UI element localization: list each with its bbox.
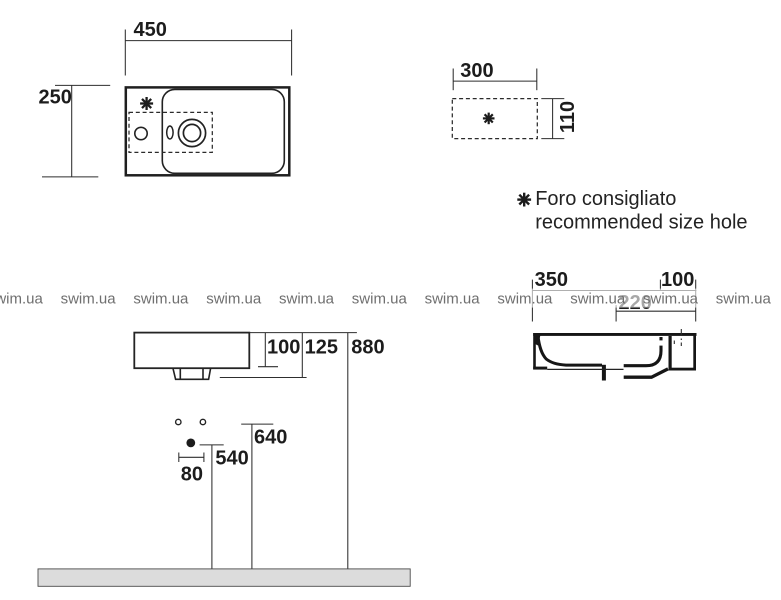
svg-text:swim.ua: swim.ua: [133, 291, 189, 308]
svg-text:swim.ua: swim.ua: [0, 291, 43, 308]
svg-text:100: 100: [267, 336, 300, 358]
svg-text:swim.ua: swim.ua: [497, 291, 553, 308]
svg-text:540: 540: [215, 447, 248, 469]
svg-text:swim.ua: swim.ua: [570, 291, 626, 308]
svg-text:swim.ua: swim.ua: [716, 291, 772, 308]
svg-text:300: 300: [460, 60, 493, 82]
svg-text:110: 110: [557, 101, 579, 133]
svg-text:Foro consigliato: Foro consigliato: [535, 188, 676, 210]
svg-text:recommended size hole: recommended size hole: [535, 212, 747, 234]
svg-text:640: 640: [254, 427, 287, 449]
svg-text:450: 450: [134, 19, 167, 41]
svg-text:swim.ua: swim.ua: [206, 291, 262, 308]
svg-text:100: 100: [661, 269, 694, 291]
svg-text:swim.ua: swim.ua: [643, 291, 699, 308]
svg-text:swim.ua: swim.ua: [352, 291, 408, 308]
svg-text:swim.ua: swim.ua: [279, 291, 335, 308]
svg-text:880: 880: [351, 336, 384, 358]
svg-text:80: 80: [181, 463, 203, 485]
svg-text:250: 250: [39, 87, 72, 109]
svg-text:swim.ua: swim.ua: [425, 291, 481, 308]
svg-text:125: 125: [305, 336, 338, 358]
svg-text:350: 350: [535, 269, 568, 291]
svg-text:swim.ua: swim.ua: [61, 291, 117, 308]
